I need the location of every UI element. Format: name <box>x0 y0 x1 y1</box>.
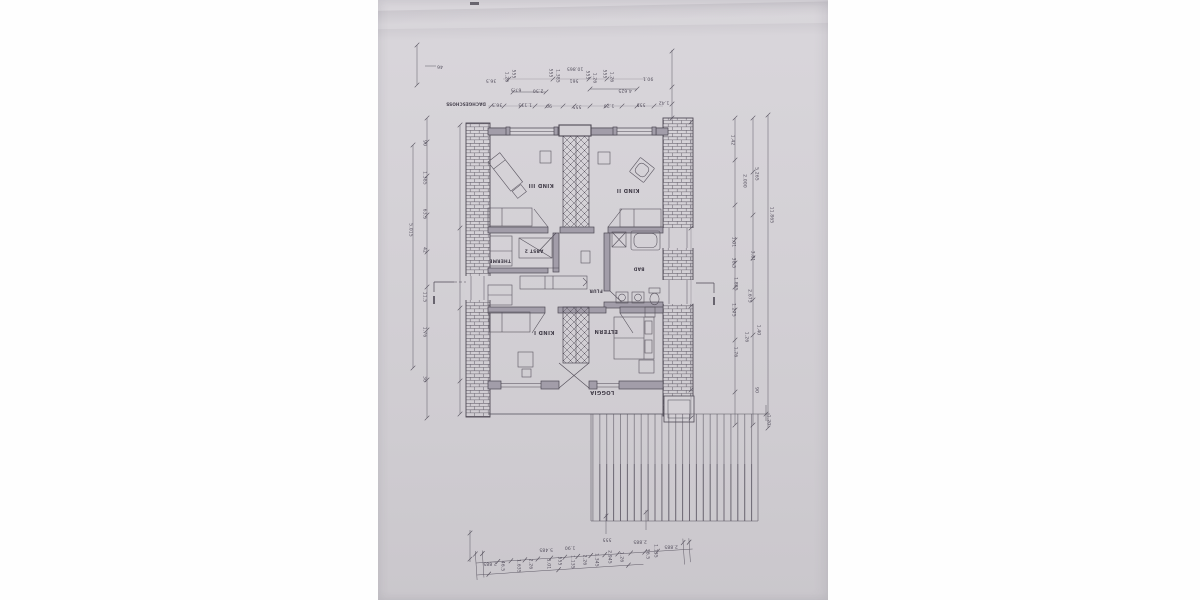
dimension-label: 555 <box>602 537 611 542</box>
room-label-kind-ii: KIND II <box>616 187 639 193</box>
dimension-label: 46 <box>437 64 443 69</box>
dimension-label: 90 <box>546 103 552 108</box>
dimension-label: 36.5 <box>486 78 497 83</box>
dimension-label: 11.5 <box>422 292 427 303</box>
dimension-label: 1.385 <box>422 171 427 185</box>
dimension-label: 561 <box>569 78 578 83</box>
dimension-label: 36.5 <box>492 102 503 107</box>
room-label-kind-iii: KIND III <box>528 182 553 188</box>
room-label-loggia: LOGGIA <box>590 389 614 395</box>
dimension-label: 2.885 <box>664 544 678 549</box>
dimension-label: 1.01 <box>546 559 551 570</box>
dimension-label: 1.26 <box>619 552 624 563</box>
dimension-label: 555 <box>636 102 645 107</box>
dimension-label: 1.26 <box>604 103 615 108</box>
room-label-therme: THERME <box>489 258 511 263</box>
dimension-label: 1.20 <box>766 415 771 426</box>
dimension-label: 1.135 <box>570 555 575 569</box>
dimension-label: 1.275 <box>731 303 736 317</box>
dimension-label: 1.90 <box>565 545 576 550</box>
dimension-label: 11.865 <box>769 207 774 224</box>
dimension-label: 90 <box>422 140 427 146</box>
dimension-label: 1.885 <box>733 277 738 291</box>
dimension-label: 555 <box>511 69 516 78</box>
dimension-label: 2.675 <box>747 289 752 303</box>
dimension-label: 555 <box>572 104 581 109</box>
dimension-label: 555 <box>602 69 607 78</box>
room-label-kind-i: KIND I <box>534 329 555 335</box>
dimension-label: 2.000 <box>742 174 747 188</box>
dimension-label: 1.345 <box>594 553 599 567</box>
scanned-floor-plan-page: KIND III KIND II ABST 2 THERME BAD FLUR … <box>0 0 1200 600</box>
dimension-label: 5.485 <box>539 547 553 552</box>
dimension-label: 36 <box>422 376 427 382</box>
dimension-label: 2.885 <box>633 539 647 544</box>
dimension-label: 42 <box>422 247 427 253</box>
dimension-label: 1.40 <box>756 325 761 336</box>
dimension-label: 67.5 <box>511 87 522 92</box>
dimension-label: 1.76 <box>422 327 427 338</box>
dimension-label: 90 <box>754 387 759 393</box>
dimension-label: 2.945 <box>607 550 612 564</box>
dimension-label: 46.5 <box>500 561 505 572</box>
dimension-label: 1.135 <box>653 544 658 558</box>
dimension-label: 2.50 <box>533 88 544 93</box>
room-label-eltern: ELTERN <box>594 328 618 334</box>
dimension-label: 4.625 <box>618 88 632 93</box>
dimension-label: 1.42 <box>659 100 670 105</box>
dimension-label: 1.76 <box>733 347 738 358</box>
dimension-label: 5.265 <box>754 167 759 181</box>
dimension-label: 3.81 <box>750 251 755 262</box>
dimension-label: 2.26 <box>528 559 533 570</box>
dimension-label: 1.635 <box>516 559 521 573</box>
dimension-label: 1.42 <box>730 135 735 146</box>
dimension-label: 1.26 <box>744 332 749 343</box>
dimension-label: 90.1 <box>643 76 654 81</box>
dimension-label: 2.26 <box>582 555 587 566</box>
photo-of-drawing: KIND III KIND II ABST 2 THERME BAD FLUR … <box>378 0 828 600</box>
dimension-label: 10.865 <box>567 66 584 71</box>
dimension-label: 1.26 <box>504 72 509 83</box>
dimension-label: 2.885 <box>483 561 497 566</box>
dimension-label: 1.26 <box>592 73 597 84</box>
room-label-flur: FLUR <box>589 288 602 293</box>
dimension-label: 1.26 <box>609 72 614 83</box>
terrace-hatching <box>488 405 770 521</box>
dimension-label: 1.385 <box>555 69 560 83</box>
floor-plan-drawing: KIND III KIND II ABST 2 THERME BAD FLUR … <box>378 0 828 600</box>
room-label-abst-2: ABST 2 <box>525 248 544 253</box>
room-label-bad: BAD <box>634 266 645 271</box>
dimension-label: 1.01 <box>731 237 736 248</box>
dimension-label: 555 <box>557 556 562 565</box>
floor-title-label: DACHGESCHOSS <box>446 102 486 107</box>
dimension-label: 555 <box>548 68 553 77</box>
plan-linework <box>378 0 828 600</box>
dimension-label: 555 <box>585 70 590 79</box>
dimension-label: 36.5 <box>645 549 650 560</box>
dimension-label: 63.5 <box>422 209 427 220</box>
dimension-label: 38.5 <box>731 258 736 269</box>
dimension-label: 1.135 <box>518 102 532 107</box>
dimension-label: 5.015 <box>408 223 413 237</box>
